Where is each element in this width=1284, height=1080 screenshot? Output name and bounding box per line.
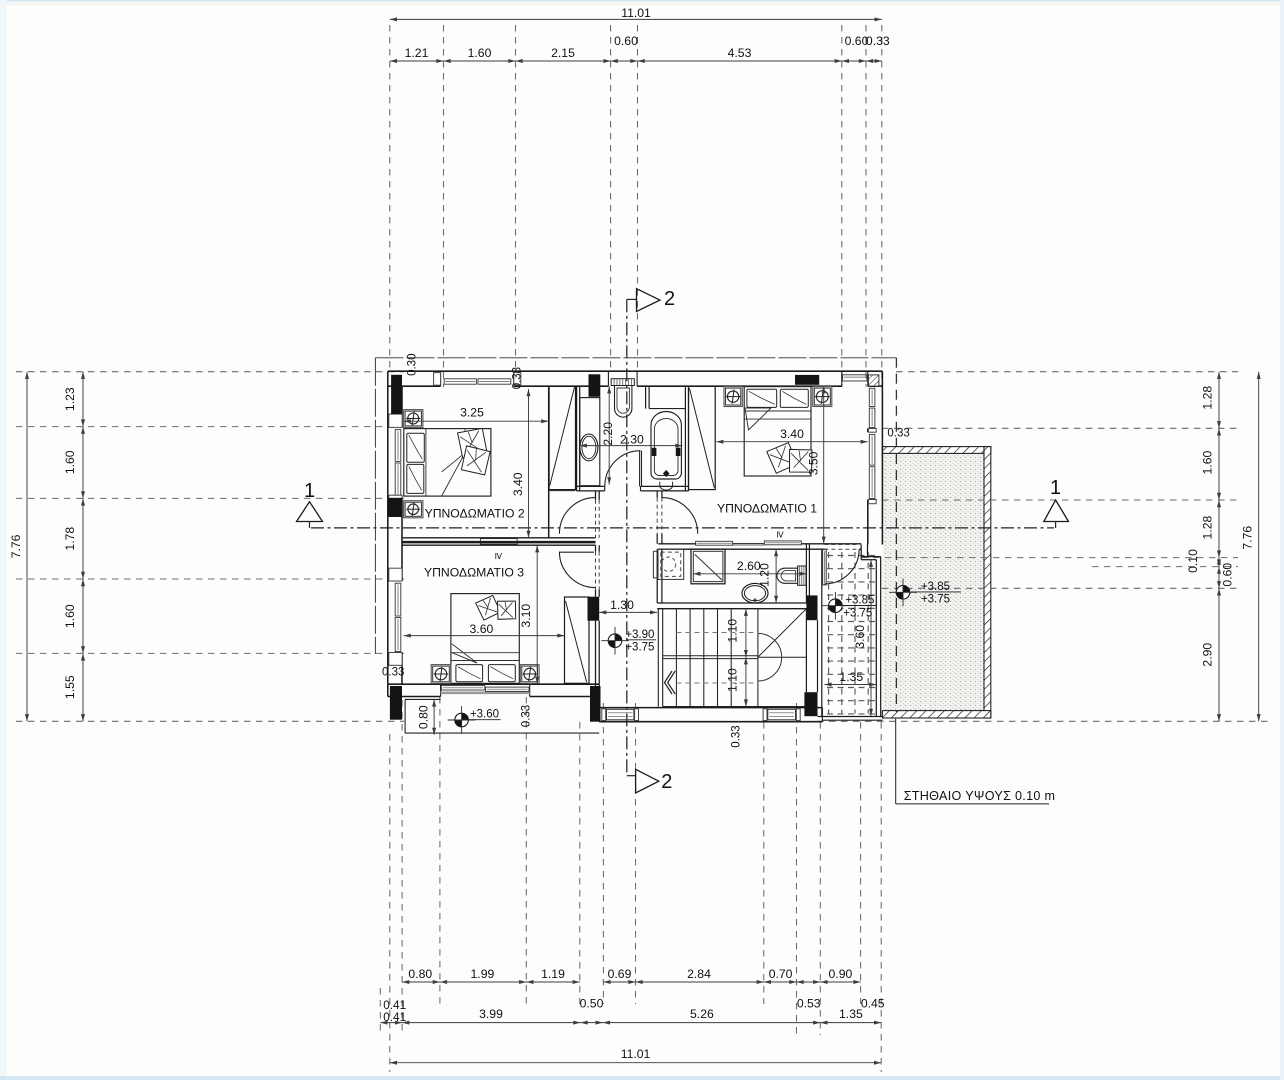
svg-text:1.99: 1.99 bbox=[471, 967, 495, 981]
svg-text:11.01: 11.01 bbox=[621, 6, 651, 20]
svg-text:1.28: 1.28 bbox=[1201, 516, 1215, 540]
svg-text:1: 1 bbox=[304, 480, 315, 502]
svg-text:0.60: 0.60 bbox=[614, 34, 638, 48]
svg-text:1: 1 bbox=[1050, 477, 1061, 499]
svg-text:ΥΠΝΟΔΩΜΑΤΙΟ 1: ΥΠΝΟΔΩΜΑΤΙΟ 1 bbox=[717, 501, 817, 515]
svg-text:ΥΠΝΟΔΩΜΑΤΙΟ 3: ΥΠΝΟΔΩΜΑΤΙΟ 3 bbox=[424, 565, 524, 579]
svg-text:1.60: 1.60 bbox=[1201, 451, 1215, 475]
svg-text:0.45: 0.45 bbox=[861, 997, 885, 1011]
svg-text:7.76: 7.76 bbox=[9, 534, 23, 558]
svg-text:3.25: 3.25 bbox=[460, 406, 484, 420]
svg-text:1.28: 1.28 bbox=[1201, 386, 1215, 410]
svg-text:Ⅳ: Ⅳ bbox=[495, 552, 503, 561]
svg-text:Ⅳ: Ⅳ bbox=[776, 531, 784, 540]
svg-text:0.80: 0.80 bbox=[408, 967, 432, 981]
svg-text:0.30: 0.30 bbox=[406, 354, 418, 376]
svg-text:2.84: 2.84 bbox=[687, 967, 711, 981]
svg-text:0.33: 0.33 bbox=[731, 725, 743, 747]
svg-text:0.70: 0.70 bbox=[769, 967, 793, 981]
svg-text:0.33: 0.33 bbox=[521, 705, 533, 727]
svg-text:+3.60: +3.60 bbox=[470, 709, 499, 721]
svg-text:+3.85: +3.85 bbox=[921, 581, 950, 593]
svg-text:11.01: 11.01 bbox=[621, 1047, 651, 1061]
svg-text:0.33: 0.33 bbox=[866, 34, 890, 48]
svg-text:1.10: 1.10 bbox=[725, 668, 739, 692]
svg-text:2.90: 2.90 bbox=[1201, 643, 1215, 667]
svg-text:2.30: 2.30 bbox=[620, 433, 644, 447]
svg-text:0.90: 0.90 bbox=[829, 967, 853, 981]
svg-text:3.40: 3.40 bbox=[780, 427, 804, 441]
svg-text:1.60: 1.60 bbox=[63, 604, 77, 628]
svg-text:7.76: 7.76 bbox=[1241, 526, 1255, 550]
svg-text:+3.75: +3.75 bbox=[921, 594, 950, 606]
svg-text:0.50: 0.50 bbox=[580, 997, 604, 1011]
svg-text:ΥΠΝΟΔΩΜΑΤΙΟ 2: ΥΠΝΟΔΩΜΑΤΙΟ 2 bbox=[425, 507, 525, 521]
svg-text:3.40: 3.40 bbox=[511, 472, 525, 496]
svg-text:1.60: 1.60 bbox=[468, 46, 492, 60]
svg-text:0.80: 0.80 bbox=[417, 705, 431, 729]
svg-text:1.35: 1.35 bbox=[839, 670, 863, 684]
svg-text:0.33: 0.33 bbox=[382, 667, 404, 679]
svg-text:2.20: 2.20 bbox=[601, 422, 615, 446]
svg-text:2.15: 2.15 bbox=[551, 46, 575, 60]
svg-text:+3.75: +3.75 bbox=[843, 607, 872, 619]
svg-text:1.23: 1.23 bbox=[63, 387, 77, 411]
svg-text:+3.90: +3.90 bbox=[625, 629, 654, 641]
svg-text:1.19: 1.19 bbox=[541, 967, 565, 981]
svg-text:ΣΤΗΘΑΙΟ ΥΨΟΥΣ 0.10 m: ΣΤΗΘΑΙΟ ΥΨΟΥΣ 0.10 m bbox=[904, 789, 1056, 803]
svg-text:3.60: 3.60 bbox=[470, 622, 494, 636]
svg-text:3.10: 3.10 bbox=[519, 604, 533, 628]
svg-text:2: 2 bbox=[664, 288, 675, 310]
svg-text:1.10: 1.10 bbox=[725, 619, 739, 643]
svg-text:1.20: 1.20 bbox=[758, 563, 772, 587]
svg-text:1.35: 1.35 bbox=[839, 1007, 863, 1021]
svg-text:0.10: 0.10 bbox=[1186, 549, 1200, 573]
svg-text:3.60: 3.60 bbox=[853, 625, 867, 649]
svg-text:5.26: 5.26 bbox=[690, 1007, 714, 1021]
svg-text:4.53: 4.53 bbox=[728, 46, 752, 60]
svg-text:1.78: 1.78 bbox=[63, 527, 77, 551]
svg-text:1.55: 1.55 bbox=[63, 675, 77, 699]
svg-text:0.33: 0.33 bbox=[512, 367, 524, 389]
svg-text:+3.85: +3.85 bbox=[845, 594, 874, 606]
svg-text:0.33: 0.33 bbox=[887, 428, 909, 440]
svg-text:3.50: 3.50 bbox=[806, 451, 820, 475]
svg-text:3.99: 3.99 bbox=[479, 1007, 503, 1021]
svg-text:+3.75: +3.75 bbox=[625, 641, 654, 653]
svg-text:0.60: 0.60 bbox=[1221, 563, 1235, 587]
svg-text:1.60: 1.60 bbox=[63, 450, 77, 474]
svg-text:1.30: 1.30 bbox=[610, 598, 634, 612]
svg-text:0.53: 0.53 bbox=[797, 997, 821, 1011]
svg-text:2: 2 bbox=[661, 771, 672, 793]
svg-text:0.69: 0.69 bbox=[608, 967, 632, 981]
svg-text:1.21: 1.21 bbox=[405, 46, 429, 60]
